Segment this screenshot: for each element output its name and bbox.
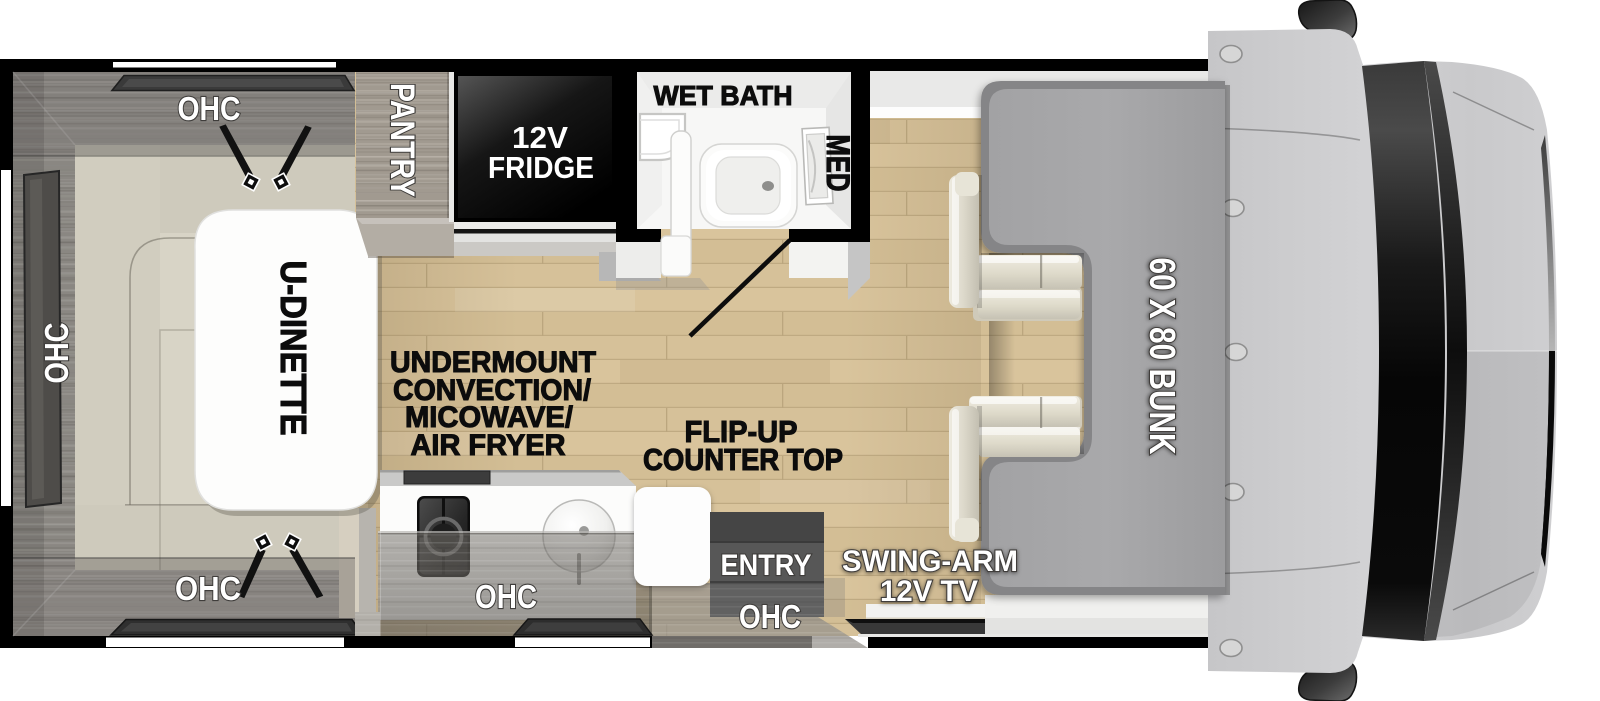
svg-text:OHC: OHC [178, 90, 241, 127]
svg-text:60 X 80 BUNK: 60 X 80 BUNK [1142, 258, 1183, 455]
svg-text:ENTRY: ENTRY [721, 549, 812, 582]
svg-text:OHC: OHC [38, 323, 75, 384]
svg-text:U-DINETTE: U-DINETTE [273, 261, 314, 436]
svg-text:MED: MED [820, 135, 856, 192]
svg-text:WET BATH: WET BATH [654, 80, 793, 111]
svg-text:SWING-ARM: SWING-ARM [842, 545, 1018, 578]
svg-text:COUNTER TOP: COUNTER TOP [643, 442, 843, 477]
svg-text:OHC: OHC [739, 598, 801, 635]
svg-text:FRIDGE: FRIDGE [488, 150, 594, 185]
svg-text:AIR FRYER: AIR FRYER [411, 429, 566, 462]
svg-text:OHC: OHC [475, 578, 537, 615]
svg-text:PANTRY: PANTRY [383, 83, 421, 197]
svg-text:OHC: OHC [175, 570, 241, 607]
svg-text:12V TV: 12V TV [880, 575, 978, 608]
